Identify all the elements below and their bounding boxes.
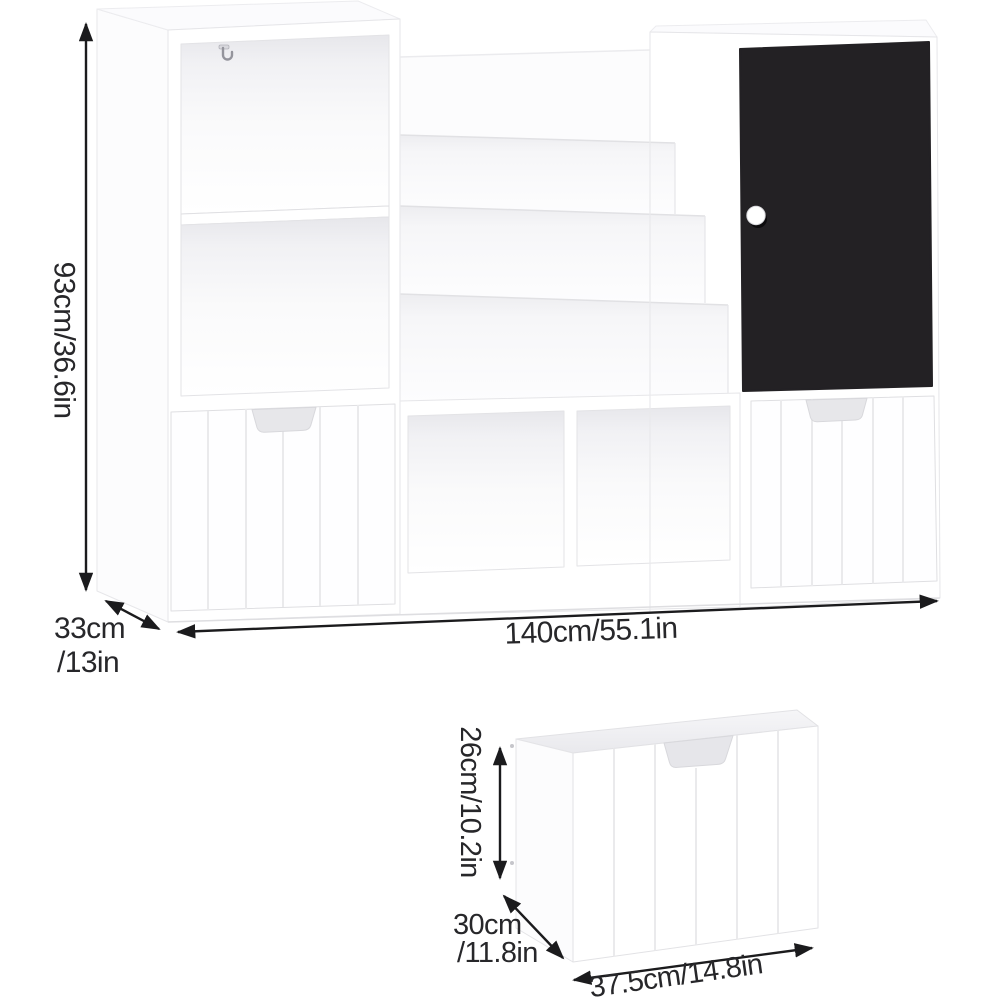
cubby-top [181,35,389,214]
main-depth-label-cm: 33cm [54,614,125,645]
left-side-panel [97,9,168,622]
screw-hole [510,861,514,865]
screw-hole [510,744,514,748]
left-tower [97,1,400,622]
furniture-illustration [0,0,1000,1000]
drawer-detail [510,710,818,962]
left-drawer [171,404,395,611]
cubby-bottom-left [408,411,564,573]
right-drawer [751,396,937,588]
main-height-label: 93cm/36.6in [48,262,79,419]
cubby-bottom-right [577,406,730,566]
tier-1 [400,135,675,214]
tier-2 [400,206,705,303]
drawer-handle-cutout [252,407,316,432]
tier-3 [400,294,728,401]
door-knob [747,206,765,224]
rack-back-panel [400,50,650,141]
drawer-height-label: 26cm/10.2in [454,726,484,877]
cubby-middle [181,217,389,396]
drawer-depth-label-in: /11.8in [457,939,538,969]
chalkboard-door [740,42,932,391]
main-unit [97,1,940,622]
drawer-side-panel [516,739,573,962]
drawer-handle-cutout [806,398,867,422]
main-width-label: 140cm/55.1in [504,614,678,651]
bottom-cubbies [400,393,740,615]
main-depth-label-in: /13in [57,648,119,679]
dimension-diagram: 93cm/36.6in 33cm /13in 140cm/55.1in 26cm… [0,0,1000,1000]
